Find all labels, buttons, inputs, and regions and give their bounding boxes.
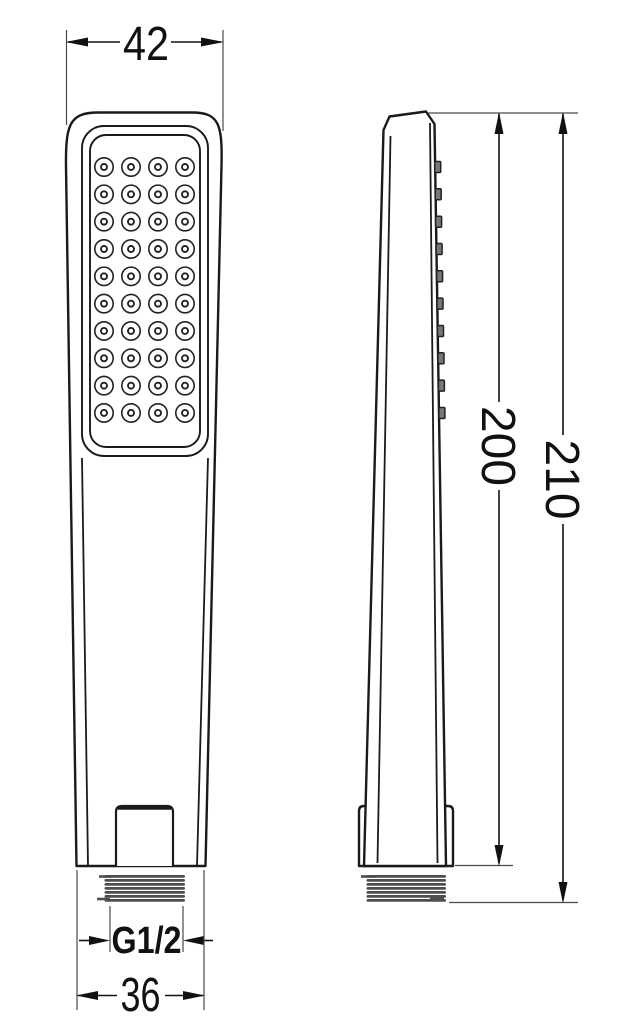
hand-shower-technical-drawing: 42 G1/2 36 200 210 bbox=[0, 0, 628, 1024]
technical-drawing-page: 42 G1/2 36 200 210 bbox=[0, 0, 628, 1024]
nozzle-profile-nub bbox=[438, 353, 444, 364]
nozzle-center bbox=[155, 410, 161, 416]
nozzle-center bbox=[128, 328, 134, 334]
nozzle-center bbox=[182, 273, 188, 279]
arrow-42-right bbox=[201, 38, 224, 47]
nozzle-center bbox=[155, 273, 161, 279]
nozzle-center bbox=[155, 328, 161, 334]
nozzle-center bbox=[155, 246, 161, 252]
nozzle-center bbox=[128, 301, 134, 307]
nozzle-center bbox=[182, 246, 188, 252]
nozzle-center bbox=[182, 383, 188, 389]
thread-band bbox=[105, 887, 186, 890]
nozzle-center bbox=[182, 328, 188, 334]
dim-label-total-length: 210 bbox=[535, 440, 588, 520]
nozzle-center bbox=[128, 191, 134, 197]
nozzle-profile-nub bbox=[438, 380, 444, 391]
nozzle-center bbox=[182, 301, 188, 307]
nozzle-center bbox=[128, 219, 134, 225]
thread-band bbox=[105, 895, 186, 898]
thread-band bbox=[105, 899, 186, 902]
dimension-lengths: 200 210 bbox=[428, 112, 588, 904]
nozzle-profile-nub bbox=[437, 298, 443, 309]
front-thread bbox=[105, 875, 186, 902]
nozzle-center bbox=[182, 191, 188, 197]
nozzle-center bbox=[155, 383, 161, 389]
arrow-210-top bbox=[559, 112, 568, 134]
dim-label-handle-length: 200 bbox=[471, 406, 524, 486]
arrow-42-left bbox=[66, 38, 89, 47]
nozzle-center bbox=[128, 246, 134, 252]
nozzle-center bbox=[101, 355, 107, 361]
nozzle-center bbox=[101, 328, 107, 334]
nozzle-profile-nub bbox=[438, 326, 444, 337]
dim-label-base-width: 36 bbox=[121, 969, 161, 1022]
nozzle-profile-nub bbox=[437, 271, 443, 282]
dimension-thread: G1/2 bbox=[79, 906, 213, 962]
spray-face-inner bbox=[90, 135, 200, 447]
nozzle-center bbox=[128, 410, 134, 416]
thread-band bbox=[367, 887, 447, 890]
nozzle-center bbox=[128, 383, 134, 389]
arrow-g-left bbox=[89, 936, 110, 945]
nozzle-center bbox=[101, 246, 107, 252]
nozzle-center bbox=[155, 355, 161, 361]
nozzle-center bbox=[155, 301, 161, 307]
arrow-200-top bbox=[495, 112, 504, 134]
nozzle-center bbox=[101, 301, 107, 307]
nozzle-profile-nub bbox=[436, 244, 442, 255]
nozzle-center bbox=[182, 164, 188, 170]
nozzle-profile-nub bbox=[439, 408, 445, 419]
thread-band bbox=[367, 883, 447, 886]
dim-label-head-width: 42 bbox=[123, 18, 169, 71]
connector-nub bbox=[116, 806, 173, 866]
nozzle-center bbox=[182, 219, 188, 225]
nozzle-profile-nub bbox=[435, 162, 441, 173]
thread-band bbox=[367, 879, 447, 882]
nozzle-profile-nub bbox=[435, 189, 441, 200]
arrow-210-bottom bbox=[559, 882, 568, 904]
nozzle-center bbox=[101, 164, 107, 170]
nozzle-center bbox=[101, 383, 107, 389]
nozzle-center bbox=[155, 219, 161, 225]
nozzle-center bbox=[101, 410, 107, 416]
arrow-36-left bbox=[76, 991, 98, 1000]
arrow-200-bottom bbox=[495, 845, 504, 867]
nozzle-center bbox=[128, 273, 134, 279]
thread-band bbox=[105, 875, 186, 878]
nozzle-center bbox=[155, 191, 161, 197]
thread-band bbox=[105, 879, 186, 882]
front-view bbox=[66, 113, 222, 902]
thread-band bbox=[367, 891, 447, 894]
nozzle-profile-nub bbox=[436, 216, 442, 227]
nozzle-center bbox=[101, 273, 107, 279]
arrow-g-right bbox=[183, 936, 204, 945]
arrow-36-right bbox=[183, 991, 205, 1000]
side-view bbox=[359, 112, 453, 902]
dim-label-thread: G1/2 bbox=[112, 920, 182, 962]
nozzle-center bbox=[182, 355, 188, 361]
nozzle-center bbox=[182, 410, 188, 416]
thread-band bbox=[105, 891, 186, 894]
nozzle-center bbox=[101, 191, 107, 197]
nozzle-center bbox=[128, 164, 134, 170]
nozzle-center bbox=[128, 355, 134, 361]
nozzle-center bbox=[101, 219, 107, 225]
nozzle-center bbox=[155, 164, 161, 170]
thread-band bbox=[105, 883, 186, 886]
thread-band bbox=[367, 875, 447, 878]
thread-band bbox=[367, 899, 447, 902]
